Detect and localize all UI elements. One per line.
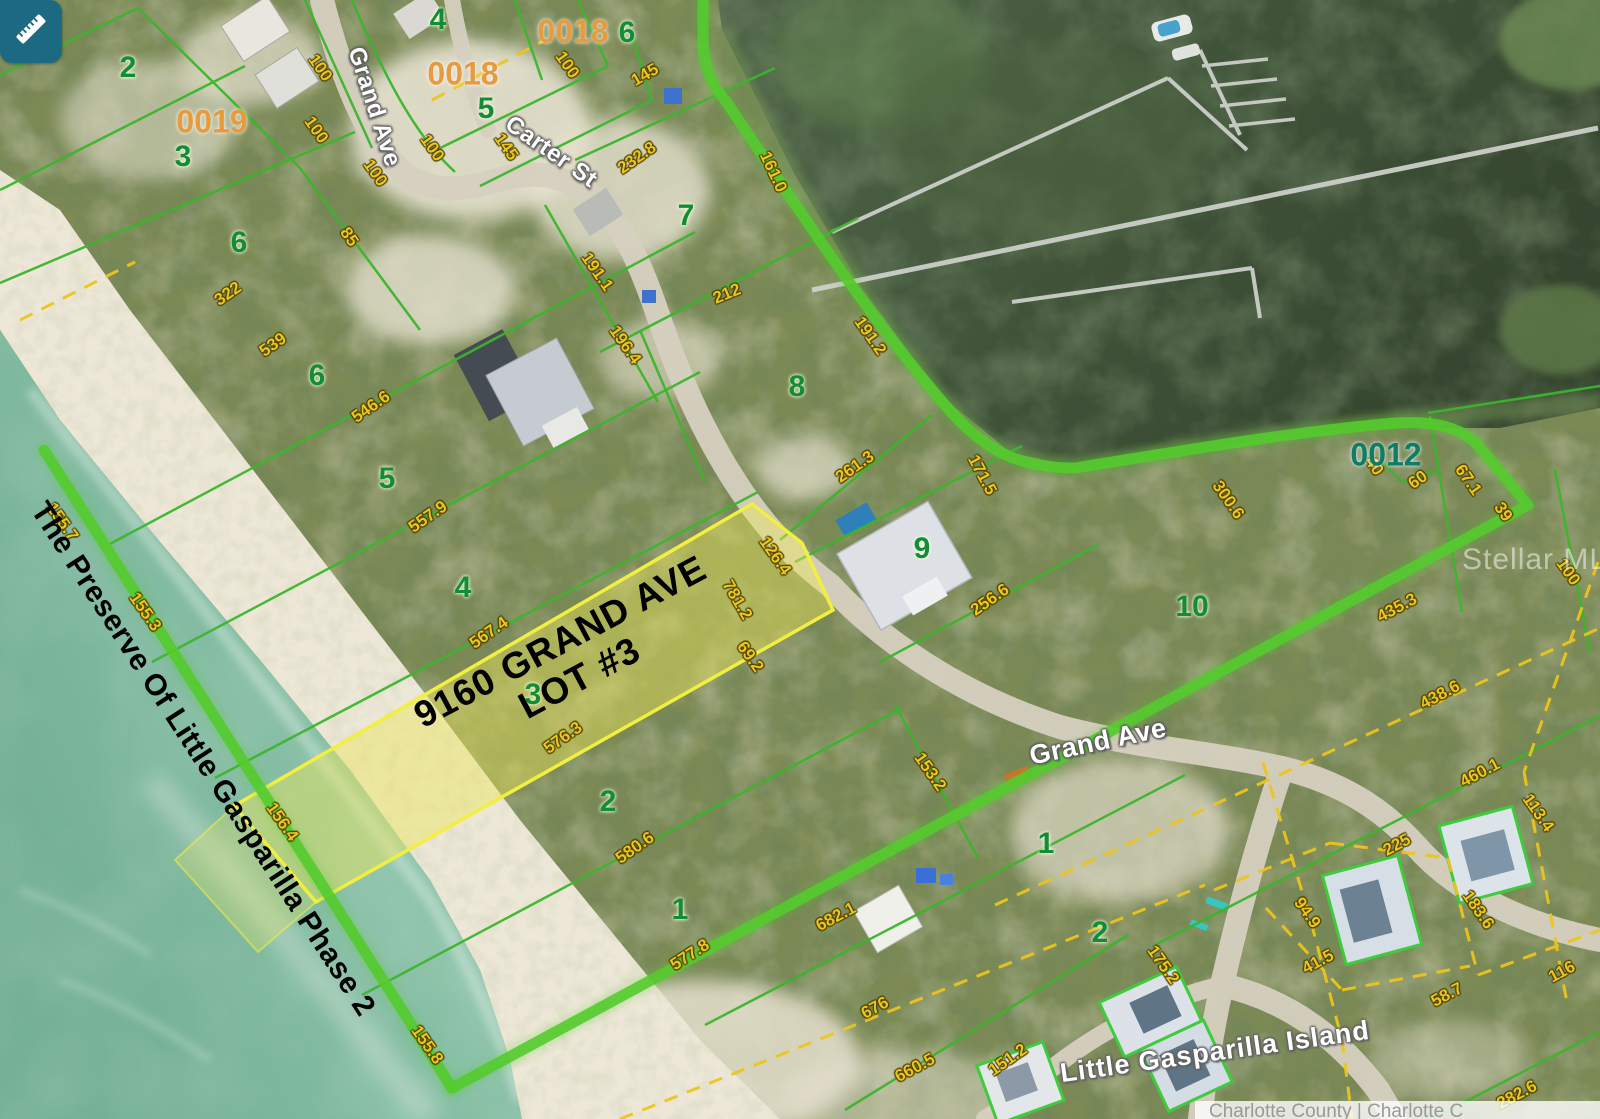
attribution-text: Charlotte County | Charlotte C (1209, 1101, 1463, 1119)
stellar-mls-watermark: Stellar MLS (1462, 543, 1600, 577)
attribution-bar: Charlotte County | Charlotte C (1195, 1101, 1600, 1119)
ruler-icon (8, 6, 54, 57)
aerial-basemap (0, 0, 1600, 1119)
measure-tool-button[interactable] (0, 0, 62, 63)
map-viewport[interactable]: 10010010085322539100145145100232.8161.01… (0, 0, 1600, 1119)
